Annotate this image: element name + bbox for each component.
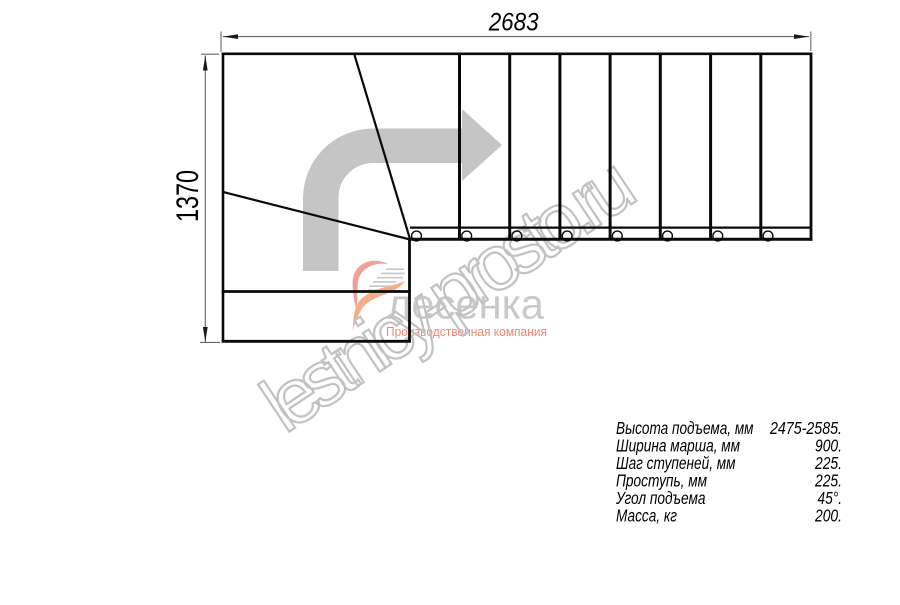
svg-text:2683: 2683: [488, 9, 539, 37]
svg-text:Масса, кг: Масса, кг: [616, 506, 677, 526]
svg-text:1370: 1370: [169, 170, 205, 222]
svg-text:200.: 200.: [814, 506, 842, 526]
